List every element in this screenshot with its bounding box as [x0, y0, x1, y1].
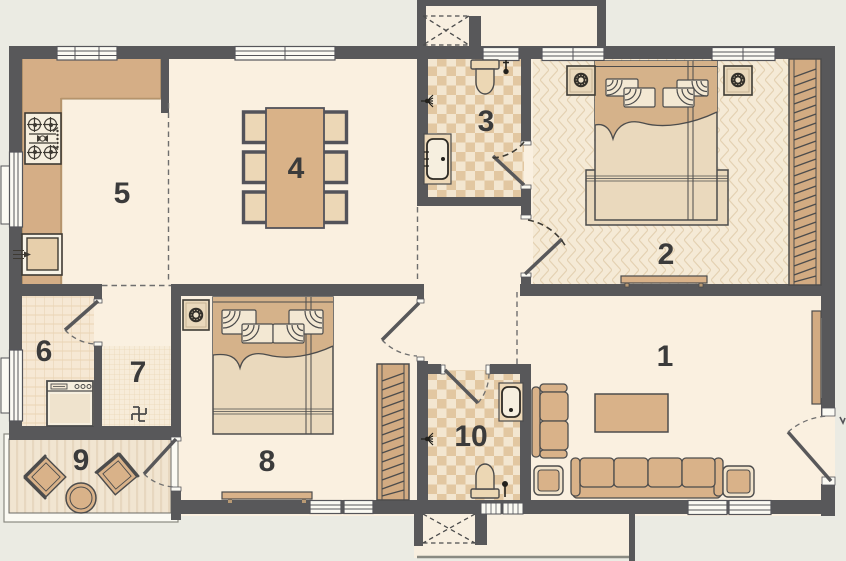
- svg-text:10: 10: [454, 420, 487, 453]
- svg-text:2: 2: [658, 238, 675, 271]
- svg-text:9: 9: [73, 444, 90, 477]
- svg-text:4: 4: [288, 152, 305, 185]
- svg-text:5: 5: [114, 177, 131, 210]
- svg-text:7: 7: [130, 356, 147, 389]
- svg-text:1: 1: [657, 340, 674, 373]
- svg-text:3: 3: [478, 105, 495, 138]
- svg-text:8: 8: [259, 445, 276, 478]
- svg-text:6: 6: [36, 335, 53, 368]
